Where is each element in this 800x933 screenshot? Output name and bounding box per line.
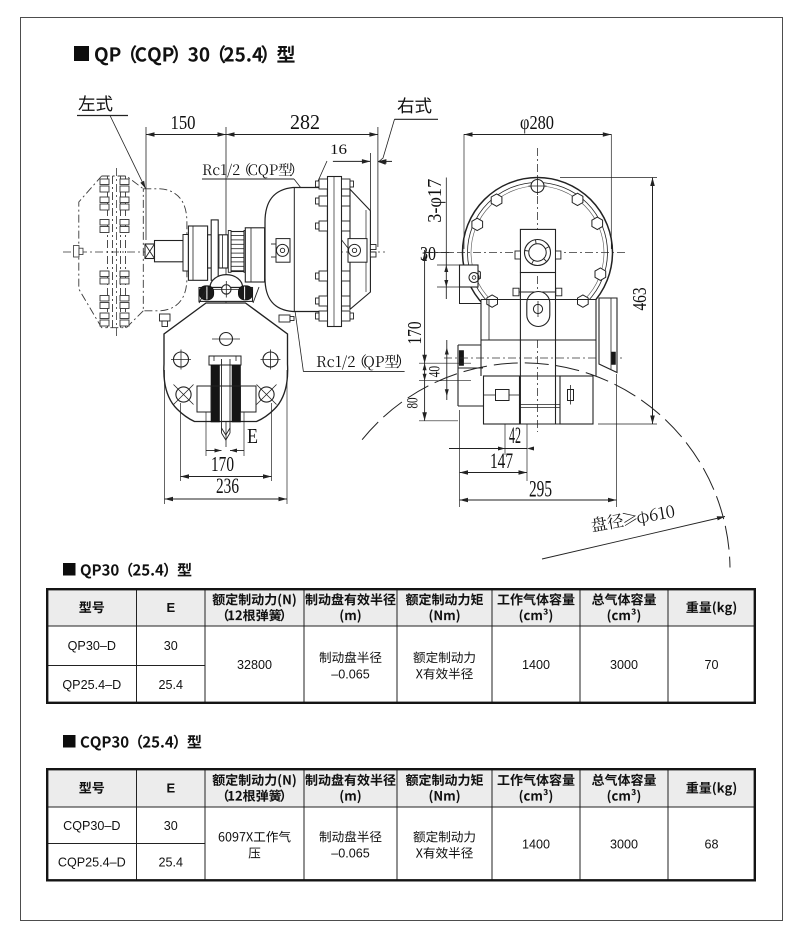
svg-text:E: E [166, 781, 175, 796]
svg-text:CQP25.4–D: CQP25.4–D [58, 856, 126, 870]
svg-text:150: 150 [171, 113, 196, 134]
svg-text:236: 236 [216, 473, 239, 498]
svg-text:170: 170 [405, 322, 426, 345]
svg-text:30: 30 [164, 819, 178, 833]
svg-text:3000: 3000 [610, 658, 638, 672]
svg-text:CQP30–D: CQP30–D [63, 819, 120, 833]
svg-text:463: 463 [629, 288, 651, 311]
svg-text:1400: 1400 [522, 658, 550, 672]
svg-text:–0.065: –0.065 [331, 667, 370, 681]
svg-text:295: 295 [529, 477, 552, 502]
svg-text:32800: 32800 [237, 658, 272, 672]
svg-text:30: 30 [164, 639, 178, 653]
svg-text:3-φ17: 3-φ17 [424, 179, 446, 223]
svg-text:80: 80 [405, 398, 422, 409]
svg-text:40: 40 [427, 366, 444, 378]
svg-text:E: E [247, 424, 258, 448]
svg-text:147: 147 [490, 448, 513, 473]
svg-text:φ280: φ280 [520, 113, 554, 134]
svg-text:QP30–D: QP30–D [68, 639, 116, 653]
svg-text:E: E [166, 600, 175, 615]
svg-text:3000: 3000 [610, 838, 638, 852]
svg-text:70: 70 [704, 658, 718, 672]
svg-text:25.4: 25.4 [159, 856, 184, 870]
svg-text:1400: 1400 [522, 838, 550, 852]
svg-text:25.4: 25.4 [159, 678, 184, 692]
svg-text:QP25.4–D: QP25.4–D [62, 678, 121, 692]
svg-text:30: 30 [420, 244, 436, 265]
svg-text:–0.065: –0.065 [331, 847, 370, 861]
svg-text:42: 42 [509, 423, 521, 448]
svg-text:16: 16 [330, 142, 348, 158]
svg-text:282: 282 [290, 110, 320, 134]
svg-text:68: 68 [704, 838, 718, 852]
